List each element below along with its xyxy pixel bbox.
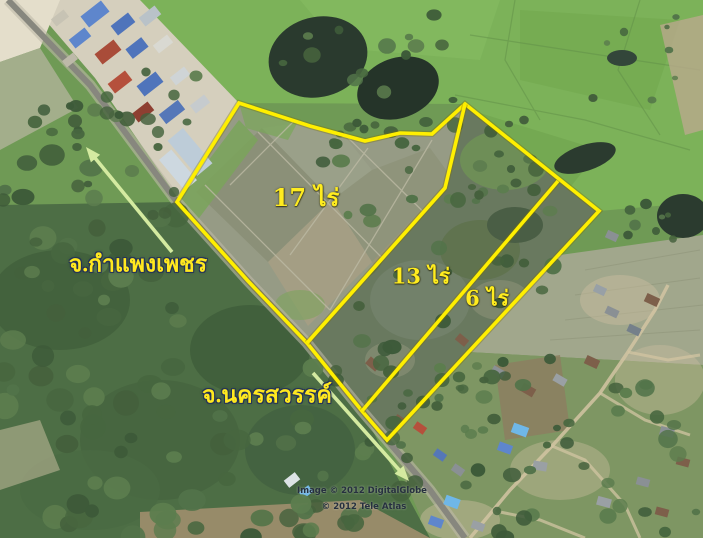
tree-canopy: [658, 430, 678, 448]
tree-canopy: [638, 507, 652, 517]
tree-canopy: [435, 40, 449, 51]
tree-canopy: [72, 143, 82, 151]
tree-canopy: [295, 422, 312, 435]
tree-canopy: [497, 185, 509, 194]
tree-canopy: [276, 435, 296, 451]
tree-canopy: [161, 358, 185, 376]
tree-canopy: [560, 437, 574, 449]
tree-canopy: [478, 426, 489, 433]
tree-canopy: [178, 489, 206, 511]
tree-canopy: [419, 117, 433, 127]
tree-canopy: [669, 235, 677, 242]
tree-canopy: [378, 342, 393, 357]
tree-canopy: [665, 47, 674, 54]
tree-canopy: [98, 295, 110, 306]
tree-canopy: [473, 160, 487, 172]
tree-canopy: [664, 25, 669, 30]
tree-canopy: [140, 113, 156, 125]
tree-canopy: [12, 189, 35, 205]
tree-canopy: [101, 91, 114, 102]
tree-canopy: [152, 126, 164, 138]
tree-canopy: [515, 379, 531, 391]
tree-canopy: [82, 405, 102, 425]
tree-canopy: [356, 68, 368, 78]
tree-canopy: [79, 327, 92, 338]
tree-canopy: [665, 212, 671, 217]
tree-canopy: [652, 227, 660, 235]
tree-canopy: [543, 442, 551, 449]
tree-canopy: [431, 401, 442, 411]
tree-canopy: [499, 371, 511, 381]
tree-canopy: [659, 215, 665, 220]
tree-canopy: [38, 104, 50, 115]
tree-canopy: [648, 97, 657, 104]
label-province-kamphaengphet: จ.กำแพงเพชร: [69, 253, 207, 276]
tree-canopy: [218, 472, 235, 486]
tree-canopy: [692, 509, 700, 515]
tree-canopy: [360, 125, 369, 134]
tree-canopy: [544, 354, 556, 364]
tree-canopy: [68, 114, 82, 127]
tree-canopy: [85, 190, 103, 206]
tree-canopy: [291, 494, 312, 513]
tree-canopy: [352, 119, 361, 127]
tree-canopy: [487, 414, 500, 425]
tree-canopy: [46, 128, 58, 136]
tree-canopy: [449, 97, 458, 103]
tree-canopy: [479, 377, 489, 384]
tree-canopy: [344, 514, 364, 532]
tree-canopy: [578, 462, 589, 470]
tree-canopy: [474, 190, 484, 199]
tree-canopy: [620, 28, 628, 36]
tree-canopy: [29, 366, 54, 387]
tree-canopy: [147, 210, 158, 220]
tree-canopy: [471, 463, 486, 477]
tree-canopy: [183, 119, 192, 126]
tree-canopy: [165, 302, 179, 314]
tree-canopy: [125, 433, 138, 443]
tree-canopy: [251, 510, 274, 527]
tree-canopy: [476, 390, 493, 403]
tree-canopy: [151, 382, 170, 399]
tree-canopy: [0, 330, 26, 350]
tree-canopy: [453, 372, 465, 383]
tree-canopy: [97, 308, 122, 326]
tree-canopy: [395, 137, 410, 148]
tree-canopy: [672, 14, 679, 20]
tree-canopy: [450, 192, 466, 208]
tree-canopy: [303, 47, 320, 62]
label-province-nakhonsawan: จ.นครสวรรค์: [202, 384, 332, 407]
tree-canopy: [344, 211, 353, 219]
tree-canopy: [611, 405, 625, 416]
tree-canopy: [71, 180, 84, 193]
tree-canopy: [113, 390, 139, 415]
tree-canopy: [412, 145, 421, 151]
tree-canopy: [401, 453, 413, 463]
tree-canopy: [497, 357, 508, 367]
tree-canopy: [42, 280, 55, 292]
tree-canopy: [519, 259, 529, 268]
tree-canopy: [360, 204, 377, 216]
tree-canopy: [85, 504, 99, 517]
tree-canopy: [543, 206, 558, 217]
tree-canopy: [405, 166, 413, 174]
tree-canopy: [190, 71, 203, 82]
tree-canopy: [635, 379, 655, 396]
attribution-teleatlas: © 2012 Tele Atlas: [322, 502, 407, 512]
tree-canopy: [84, 181, 92, 188]
label-area-6-rai: 6 ไร่: [465, 288, 509, 309]
tree-canopy: [316, 157, 330, 168]
tree-canopy: [465, 429, 477, 439]
tree-canopy: [460, 481, 471, 490]
tree-canopy: [434, 363, 446, 373]
tree-canopy: [303, 523, 320, 538]
tree-canopy: [115, 111, 124, 119]
tree-canopy: [620, 388, 632, 398]
tree-canopy: [303, 32, 313, 39]
tree-canopy: [125, 165, 139, 177]
pond-small-ne: [607, 50, 637, 66]
tree-canopy: [599, 508, 616, 524]
tree-canopy: [434, 394, 443, 402]
tree-canopy: [667, 420, 681, 430]
tree-canopy: [32, 345, 54, 367]
tree-canopy: [28, 116, 42, 129]
tree-canopy: [353, 301, 365, 311]
tree-canopy: [511, 179, 522, 188]
tree-canopy: [623, 231, 633, 240]
tree-canopy: [650, 410, 664, 423]
tree-canopy: [612, 499, 627, 513]
tree-canopy: [408, 39, 425, 52]
label-area-17-rai: 17 ไร่: [273, 186, 340, 210]
tree-canopy: [353, 334, 371, 348]
tree-canopy: [169, 314, 186, 327]
tree-canopy: [588, 94, 597, 102]
tree-canopy: [87, 476, 102, 489]
tree-canopy: [279, 60, 288, 66]
tree-canopy: [398, 402, 407, 410]
tree-canopy: [60, 411, 76, 426]
tree-canopy: [456, 385, 465, 391]
tree-canopy: [30, 237, 43, 246]
tree-canopy: [672, 76, 678, 81]
label-area-13-rai: 13 ไร่: [392, 266, 450, 287]
tree-canopy: [83, 387, 104, 406]
tree-canopy: [401, 50, 411, 60]
tree-canopy: [104, 477, 131, 500]
tree-canopy: [377, 85, 391, 98]
tree-canopy: [46, 388, 73, 412]
tree-canopy: [88, 219, 105, 236]
tree-canopy: [188, 521, 205, 534]
tree-canopy: [406, 195, 418, 204]
tree-canopy: [405, 34, 413, 41]
tree-canopy: [553, 425, 561, 431]
tree-canopy: [431, 241, 447, 256]
tree-canopy: [317, 471, 328, 482]
tree-canopy: [56, 435, 79, 453]
tree-canopy: [223, 429, 250, 450]
tree-canopy: [403, 389, 413, 396]
tree-canopy: [468, 184, 476, 190]
tree-canopy: [503, 468, 521, 482]
tree-canopy: [73, 281, 93, 297]
tree-canopy: [505, 121, 513, 128]
tree-canopy: [516, 510, 532, 525]
tree-canopy: [494, 150, 504, 157]
tree-canopy: [507, 165, 515, 173]
tree-canopy: [100, 106, 115, 119]
tree-canopy: [563, 419, 574, 427]
tree-canopy: [493, 507, 502, 515]
attribution-digitalglobe: Image © 2012 DigitalGlobe: [297, 486, 427, 496]
tree-canopy: [332, 155, 350, 168]
tree-canopy: [625, 205, 636, 214]
tree-canopy: [329, 139, 342, 149]
tree-canopy: [156, 405, 175, 420]
tree-canopy: [629, 220, 641, 231]
tree-canopy: [527, 184, 541, 196]
tree-canopy: [248, 432, 263, 445]
tree-canopy: [66, 102, 74, 110]
tree-canopy: [669, 446, 686, 462]
tree-canopy: [536, 286, 548, 295]
tree-canopy: [153, 143, 162, 151]
tree-canopy: [168, 90, 179, 101]
tree-canopy: [39, 144, 65, 166]
tree-canopy: [426, 9, 441, 20]
tree-canopy: [212, 410, 227, 422]
tree-canopy: [604, 40, 610, 46]
tree-canopy: [659, 527, 671, 538]
tree-canopy: [519, 116, 529, 125]
tree-canopy: [640, 199, 652, 209]
tree-canopy: [472, 362, 482, 370]
tree-canopy: [71, 129, 84, 140]
tree-canopy: [363, 215, 381, 228]
tree-canopy: [47, 304, 66, 321]
tree-canopy: [524, 466, 536, 475]
tree-canopy: [166, 451, 182, 463]
tree-canopy: [114, 446, 128, 458]
tree-canopy: [66, 365, 90, 383]
tree-canopy: [601, 478, 614, 488]
tree-canopy: [24, 266, 40, 278]
tree-canopy: [141, 68, 150, 77]
tree-canopy: [150, 503, 177, 525]
tree-canopy: [159, 207, 172, 218]
tree-canopy: [17, 155, 37, 171]
tree-canopy: [378, 38, 396, 54]
tree-canopy: [335, 26, 344, 35]
aerial-photo-stage: 17 ไร่ 13 ไร่ 6 ไร่ จ.กำแพงเพชร จ.นครสวร…: [0, 0, 703, 538]
tree-canopy: [7, 384, 20, 395]
tree-canopy: [371, 121, 380, 129]
